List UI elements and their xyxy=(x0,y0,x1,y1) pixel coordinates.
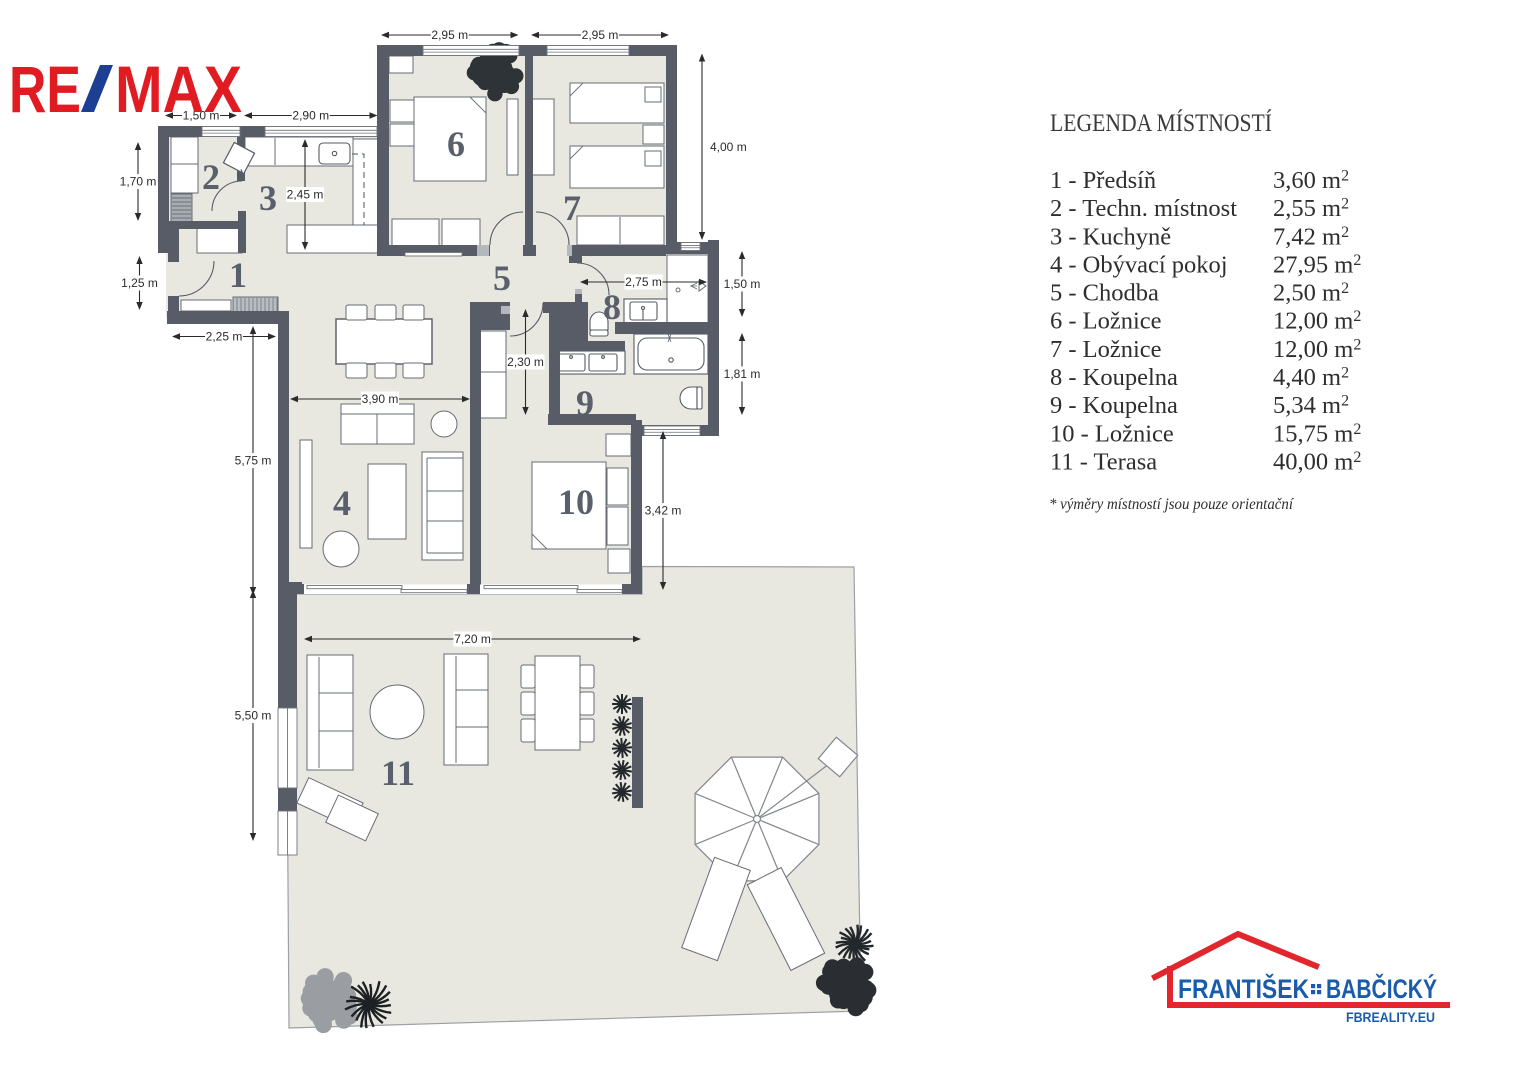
svg-text:7: 7 xyxy=(563,188,581,228)
svg-text:2,95 m: 2,95 m xyxy=(431,28,468,42)
svg-text:4: 4 xyxy=(333,483,351,523)
svg-text:2,45 m: 2,45 m xyxy=(287,188,324,202)
svg-text:FRANTIŠEK: FRANTIŠEK xyxy=(1178,973,1309,1004)
svg-text:2 - Techn. místnost: 2 - Techn. místnost xyxy=(1050,195,1237,222)
svg-text:2,55 m2: 2,55 m2 xyxy=(1273,195,1349,222)
svg-text:12,00 m2: 12,00 m2 xyxy=(1273,308,1361,335)
svg-text:10 - Ložnice: 10 - Ložnice xyxy=(1050,420,1174,447)
svg-text:2,90 m: 2,90 m xyxy=(292,109,329,123)
svg-text:* výměry místností jsou pouze: * výměry místností jsou pouze orientační xyxy=(1049,496,1294,513)
svg-text:1,70 m: 1,70 m xyxy=(120,175,157,189)
svg-text:15,75 m2: 15,75 m2 xyxy=(1273,420,1361,447)
svg-text:5: 5 xyxy=(493,258,511,298)
svg-text:1,81 m: 1,81 m xyxy=(724,367,761,381)
svg-text:3: 3 xyxy=(259,178,277,218)
svg-text:LEGENDA MÍSTNOSTÍ: LEGENDA MÍSTNOSTÍ xyxy=(1050,109,1272,137)
svg-text:11 - Terasa: 11 - Terasa xyxy=(1050,449,1157,476)
svg-text:1,50 m: 1,50 m xyxy=(724,277,761,291)
svg-text:2: 2 xyxy=(202,157,220,197)
svg-text:4,00 m: 4,00 m xyxy=(710,140,747,154)
svg-text:2,95 m: 2,95 m xyxy=(582,28,619,42)
svg-text:27,95 m2: 27,95 m2 xyxy=(1273,251,1361,278)
svg-text:7,42 m2: 7,42 m2 xyxy=(1273,223,1349,250)
svg-text:3,60 m2: 3,60 m2 xyxy=(1273,167,1349,194)
svg-text:5,50 m: 5,50 m xyxy=(235,709,272,723)
svg-text:1,25 m: 1,25 m xyxy=(121,276,158,290)
svg-text:4 - Obývací pokoj: 4 - Obývací pokoj xyxy=(1050,251,1228,278)
svg-text:40,00 m2: 40,00 m2 xyxy=(1273,449,1361,476)
svg-text:7,20 m: 7,20 m xyxy=(454,632,491,646)
svg-text:FBREALITY.EU: FBREALITY.EU xyxy=(1346,1010,1435,1025)
svg-text:1 - Předsíň: 1 - Předsíň xyxy=(1050,167,1156,194)
svg-text:9: 9 xyxy=(576,383,594,423)
svg-text:2,75 m: 2,75 m xyxy=(625,275,662,289)
svg-text:3 - Kuchyně: 3 - Kuchyně xyxy=(1050,223,1171,250)
svg-text:5,75 m: 5,75 m xyxy=(235,454,272,468)
svg-text:9 - Koupelna: 9 - Koupelna xyxy=(1050,392,1178,419)
svg-text:12,00 m2: 12,00 m2 xyxy=(1273,336,1361,363)
svg-text:MAX: MAX xyxy=(115,52,242,126)
svg-text:5 - Chodba: 5 - Chodba xyxy=(1050,280,1159,307)
svg-text:4,40 m2: 4,40 m2 xyxy=(1273,364,1349,391)
svg-text:1: 1 xyxy=(229,255,247,295)
svg-text:BABČICKÝ: BABČICKÝ xyxy=(1326,973,1437,1004)
svg-text:6: 6 xyxy=(447,124,465,164)
svg-text:RE: RE xyxy=(9,52,81,126)
svg-text:2,50 m2: 2,50 m2 xyxy=(1273,280,1349,307)
svg-text:8: 8 xyxy=(603,287,621,327)
svg-text:6 - Ložnice: 6 - Ložnice xyxy=(1050,308,1162,335)
svg-text:8 - Koupelna: 8 - Koupelna xyxy=(1050,364,1178,391)
svg-text:7 - Ložnice: 7 - Ložnice xyxy=(1050,336,1162,363)
svg-text:3,90 m: 3,90 m xyxy=(362,392,399,406)
svg-text:3,42 m: 3,42 m xyxy=(645,504,682,518)
svg-text:2,30 m: 2,30 m xyxy=(507,355,544,369)
svg-text:10: 10 xyxy=(558,482,594,522)
svg-text:2,25 m: 2,25 m xyxy=(206,330,243,344)
svg-text:5,34 m2: 5,34 m2 xyxy=(1273,392,1349,419)
svg-text:11: 11 xyxy=(381,753,415,793)
